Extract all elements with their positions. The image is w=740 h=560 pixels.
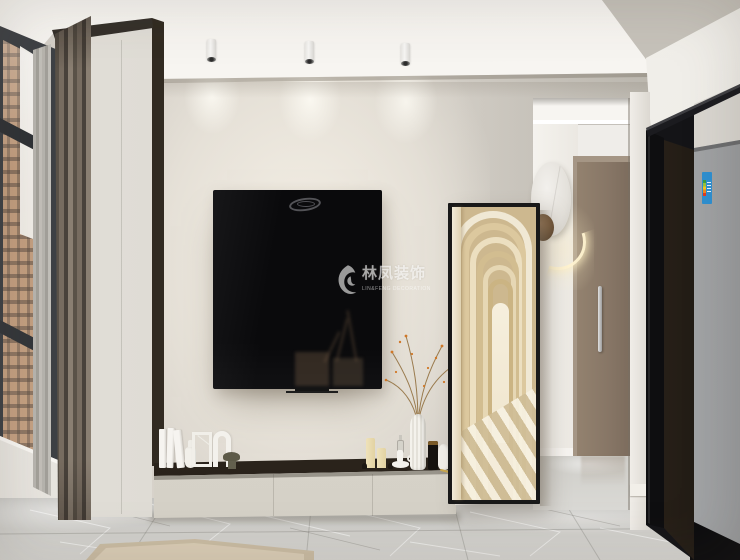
olive-bowl <box>223 452 240 461</box>
chamberstick-holder <box>392 461 409 468</box>
white-book <box>159 429 166 468</box>
black-candle-knob <box>362 463 367 469</box>
black-jar-candle <box>428 441 438 470</box>
sculpted-white-vase <box>410 414 426 470</box>
watermark: 林凤装饰 LIN&FENG DECORATION <box>335 262 455 306</box>
dried-branch-with-berries <box>378 328 458 424</box>
ceiling-spotlight <box>401 43 410 64</box>
ceiling-spotlight <box>207 39 216 60</box>
tv-room-reflection <box>333 358 363 386</box>
phoenix-swirl-logo-icon <box>335 264 359 298</box>
frame-sculpture <box>192 432 212 467</box>
corridor-near-pillar <box>452 207 461 500</box>
leaning-floor-mirror <box>448 203 540 504</box>
watermark-subtitle: LIN&FENG DECORATION <box>362 286 431 292</box>
pillar-candle-tall <box>366 438 375 468</box>
spotlight-lens <box>207 57 216 62</box>
pillar-candle-short <box>377 448 386 468</box>
cove-shadow <box>155 82 650 98</box>
blackout-curtain <box>55 8 91 520</box>
black-jar-lid <box>428 441 438 445</box>
watermark-title: 林凤装饰 <box>362 262 431 286</box>
spotlight-lens <box>401 61 410 66</box>
tv-light-reflection-inner <box>297 201 315 207</box>
door-handle <box>598 286 602 352</box>
sheer-curtain <box>33 44 51 496</box>
interior-render-scene: 林凤装饰 LIN&FENG DECORATION <box>0 0 740 560</box>
door-floor-reflection <box>581 456 625 486</box>
ceiling-spotlight <box>305 41 314 62</box>
column-panel-seam <box>121 40 122 514</box>
spotlight-lens <box>305 59 314 64</box>
opening-top-shadow <box>533 98 632 106</box>
tv-room-reflection <box>295 352 329 386</box>
watermark-text: 林凤装饰 LIN&FENG DECORATION <box>362 262 431 292</box>
mirror-wall-shadow <box>540 210 552 506</box>
cabinet-door-seam <box>372 474 373 516</box>
cabinet-door-seam <box>273 474 274 516</box>
tv-stand-bar <box>286 391 338 393</box>
